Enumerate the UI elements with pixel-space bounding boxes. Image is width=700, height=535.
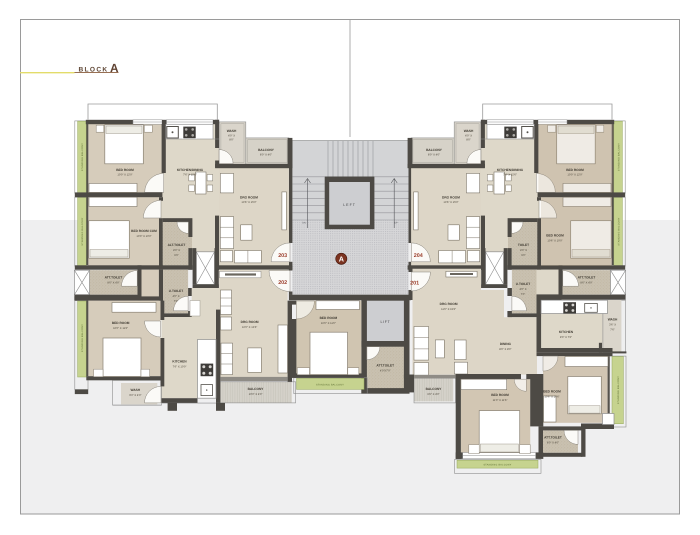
svg-text:ATT.TOILET: ATT.TOILET (105, 276, 123, 280)
svg-text:DN: DN (302, 222, 306, 225)
svg-text:203: 203 (278, 253, 287, 259)
svg-text:BALCONY: BALCONY (258, 148, 275, 152)
svg-text:10'0" X 10'0": 10'0" X 10'0" (136, 235, 151, 238)
svg-text:4'0" X: 4'0" X (520, 288, 527, 291)
svg-text:LIFT: LIFT (381, 320, 391, 324)
svg-text:STANDING BALCONY: STANDING BALCONY (316, 383, 344, 386)
svg-text:8'0" X 8'0": 8'0" X 8'0" (499, 348, 511, 351)
svg-text:TOILET: TOILET (518, 243, 529, 247)
svg-text:DRG ROOM: DRG ROOM (440, 302, 458, 306)
svg-text:6'6" X 4'0": 6'6" X 4'0" (427, 393, 439, 396)
svg-text:ATT.TOILET: ATT.TOILET (578, 276, 596, 280)
svg-text:DRG ROOM: DRG ROOM (442, 195, 460, 199)
svg-text:4'0" X: 4'0" X (520, 249, 527, 252)
svg-text:8'0": 8'0" (466, 139, 471, 142)
svg-text:BALCONY: BALCONY (426, 148, 443, 152)
svg-text:10'0" X 11'6": 10'0" X 11'6" (113, 327, 128, 330)
svg-text:6'0": 6'0" (521, 254, 526, 257)
svg-text:BLOCK: BLOCK (79, 66, 109, 73)
svg-text:8'0" X 4'0": 8'0" X 4'0" (260, 153, 272, 156)
svg-text:13'6" X 15'0": 13'6" X 15'0" (443, 201, 458, 204)
svg-text:DRG ROOM: DRG ROOM (240, 195, 258, 199)
svg-text:10'6" X 10'6": 10'6" X 10'6" (544, 396, 559, 399)
svg-text:10'0" X 13'6": 10'0" X 13'6" (242, 326, 257, 329)
svg-text:11'0" X 15'6": 11'0" X 15'6" (441, 308, 456, 311)
svg-text:8'0" X 4'0": 8'0" X 4'0" (107, 282, 119, 285)
svg-text:DINING: DINING (500, 342, 512, 346)
svg-text:BED ROOM: BED ROOM (116, 168, 134, 172)
svg-text:204: 204 (414, 253, 423, 259)
svg-text:KITCHEN/DINING: KITCHEN/DINING (497, 168, 524, 172)
svg-text:4'0" X: 4'0" X (173, 295, 180, 298)
svg-text:KITCHEN: KITCHEN (172, 360, 187, 364)
svg-text:LEFT: LEFT (343, 203, 356, 207)
svg-text:10'6" X 10'0": 10'6" X 10'0" (547, 240, 562, 243)
svg-text:BED ROOM: BED ROOM (566, 168, 584, 172)
svg-text:7'6" X 15'6": 7'6" X 15'6" (183, 173, 197, 176)
svg-text:BED ROOM: BED ROOM (491, 393, 509, 397)
svg-text:10'0" X 11'0": 10'0" X 11'0" (321, 322, 336, 325)
svg-text:ATT.TOILET: ATT.TOILET (544, 436, 562, 440)
svg-text:KITCHEN: KITCHEN (559, 330, 574, 334)
svg-text:3'6" X: 3'6" X (609, 324, 616, 327)
svg-text:13'6" X 15'0": 13'6" X 15'0" (241, 201, 256, 204)
svg-text:7'6" X 15'6": 7'6" X 15'6" (503, 173, 517, 176)
svg-text:8'0" X 4'0": 8'0" X 4'0" (547, 442, 559, 445)
svg-text:BED ROOM: BED ROOM (320, 316, 338, 320)
svg-text:WASH: WASH (464, 129, 474, 133)
svg-text:WASH: WASH (131, 388, 141, 392)
svg-text:KITCHEN/DINING: KITCHEN/DINING (177, 168, 204, 172)
svg-text:STANDING BALCONY: STANDING BALCONY (81, 324, 84, 352)
svg-text:BED ROOM: BED ROOM (546, 234, 564, 238)
svg-text:ATT.TOILET: ATT.TOILET (376, 364, 394, 368)
svg-text:UP: UP (394, 222, 398, 225)
svg-text:8'0": 8'0" (229, 139, 234, 142)
svg-text:BED ROOM: BED ROOM (543, 390, 561, 394)
svg-text:10'0" X 12'0": 10'0" X 12'0" (117, 173, 132, 176)
svg-text:4'0"X7'0": 4'0"X7'0" (380, 370, 391, 373)
svg-text:7'6": 7'6" (610, 329, 615, 332)
svg-text:BALCONY: BALCONY (426, 387, 443, 391)
svg-text:4'0" X: 4'0" X (173, 249, 180, 252)
svg-text:11'0" X 11'6": 11'0" X 11'6" (493, 399, 508, 402)
svg-text:U.TOILET: U.TOILET (169, 289, 184, 293)
svg-text:7'6" X 10'0": 7'6" X 10'0" (173, 366, 187, 369)
svg-text:DRG ROOM: DRG ROOM (241, 320, 259, 324)
svg-text:ALT.TOILET: ALT.TOILET (168, 243, 186, 247)
svg-text:WASH: WASH (608, 318, 618, 322)
svg-text:6'0": 6'0" (174, 254, 179, 257)
svg-text:4'0" X: 4'0" X (228, 134, 235, 137)
svg-text:4'0" X: 4'0" X (465, 134, 472, 137)
svg-text:BALCONY: BALCONY (248, 387, 265, 391)
svg-text:202: 202 (278, 280, 287, 286)
svg-text:BED ROOM CUM: BED ROOM CUM (131, 229, 157, 233)
svg-text:STANDING BALCONY: STANDING BALCONY (617, 376, 620, 404)
svg-text:10'0" X 4'0": 10'0" X 4'0" (249, 393, 263, 396)
svg-text:8'0" X 4'0": 8'0" X 4'0" (580, 282, 592, 285)
svg-text:6'0" X 4'0": 6'0" X 4'0" (129, 394, 141, 397)
svg-text:WASH: WASH (227, 129, 237, 133)
svg-text:BED ROOM: BED ROOM (112, 321, 130, 325)
svg-text:A: A (339, 255, 344, 264)
svg-text:STANDING BALCONY: STANDING BALCONY (81, 143, 84, 171)
svg-text:10'0" X 12'0": 10'0" X 12'0" (567, 173, 582, 176)
svg-text:7'0": 7'0" (174, 300, 179, 303)
svg-text:U.TOILET: U.TOILET (516, 282, 531, 286)
svg-text:STANDING BALCONY: STANDING BALCONY (483, 464, 511, 467)
svg-text:STANDING BALCONY: STANDING BALCONY (618, 143, 621, 171)
svg-text:STANDING BALCONY: STANDING BALCONY (618, 217, 621, 245)
svg-text:7'0": 7'0" (521, 293, 526, 296)
svg-text:A: A (110, 61, 119, 75)
svg-text:8'0" X 4'0": 8'0" X 4'0" (428, 153, 440, 156)
svg-text:201: 201 (410, 280, 419, 286)
svg-text:9'0" X 7'6": 9'0" X 7'6" (560, 336, 572, 339)
svg-text:STANDING BALCONY: STANDING BALCONY (81, 217, 84, 245)
